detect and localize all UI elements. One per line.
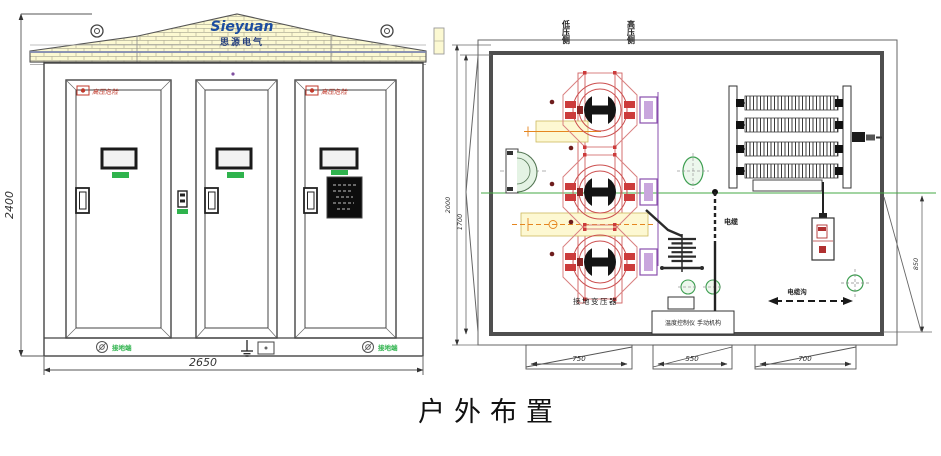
depth-inner-label: 1700 [456,214,464,231]
width-dimension-label: 2650 [189,356,217,369]
nameplate [327,177,362,218]
controller-label: 温度控制仪 手动机构 [665,319,721,327]
logo-brand: Sieyuan [211,19,274,35]
door-3[interactable]: 高压危险 [295,80,396,338]
display-window [217,149,251,168]
ground-label-left: 接地端 [112,343,132,352]
side-label-high-voltage: 高压侧 [627,19,636,45]
indicator-green [227,172,244,178]
cable-trench-label: 电缆沟 [787,287,807,296]
transformer-label: 接地变压器 [573,296,618,306]
indicator-green [112,172,129,178]
width-dimension: 2650 [44,356,423,375]
depth-outer-label: 2000 [444,197,452,214]
door-swing-line [466,56,478,332]
door-handle[interactable] [76,188,89,213]
drawing-caption: 户外布置 [330,390,650,429]
ground-point-left: 接地端 [97,342,133,353]
warning-text: 高压危险 [92,88,120,96]
lifting-eye-right [381,25,393,37]
height-dimension-label: 2400 [3,191,16,219]
bottom-dim-label-3: 700 [798,355,812,363]
plan-view: 低压侧 高压侧 [444,19,936,369]
base-box [258,342,274,354]
cable-label: 电缆 [724,217,738,226]
side-label-low-voltage: 低压侧 [562,19,571,45]
right-dimension-label: 850 [912,258,920,270]
elevation-view: 2400 Sieyuan 思源电气 [3,14,444,375]
bottom-dimension-2: 550 [653,345,732,369]
warning-text: 高压危险 [321,88,349,96]
door-2[interactable] [196,80,277,338]
bottom-dim-label-2: 550 [685,355,699,363]
ground-label-right: 接地端 [378,343,398,352]
indicator-green [331,170,348,175]
bottom-dim-label-1: 750 [572,355,586,363]
ground-point-right: 接地端 [363,342,399,353]
bottom-dimension-1: 750 [526,345,632,369]
screenshot-root: 2400 Sieyuan 思源电气 [0,0,941,456]
door-handle[interactable] [304,188,317,213]
lifting-eye-left [91,25,103,37]
bottom-dimension-3: 700 [755,345,856,369]
display-window [321,149,357,168]
display-window [102,149,136,168]
door-1[interactable]: 高压危险 [66,80,171,338]
door-handle[interactable] [205,188,218,213]
logo-subtext: 思源电气 [220,36,264,48]
vent-dot [231,72,234,75]
center-lock[interactable] [177,191,188,214]
technical-drawing: 2400 Sieyuan 思源电气 [0,0,941,456]
